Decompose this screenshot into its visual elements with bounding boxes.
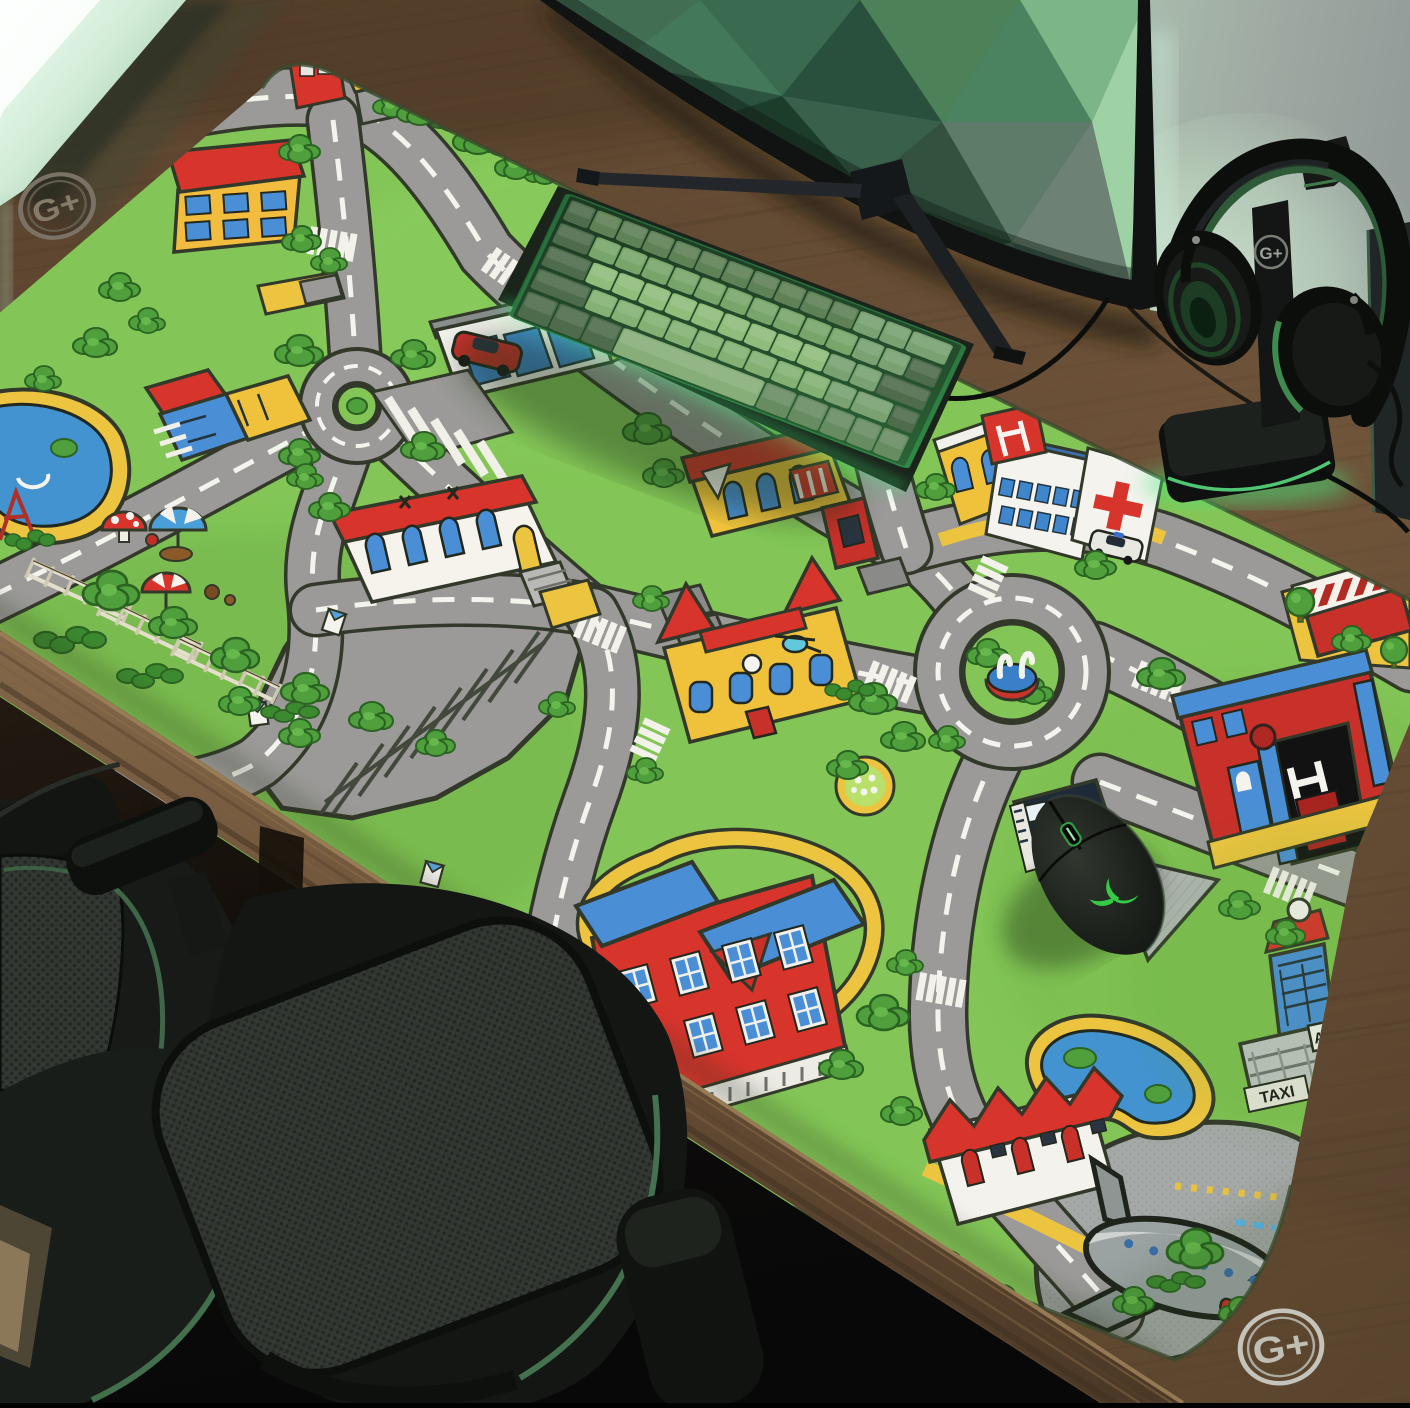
svg-text:G+: G+ xyxy=(1259,244,1282,263)
